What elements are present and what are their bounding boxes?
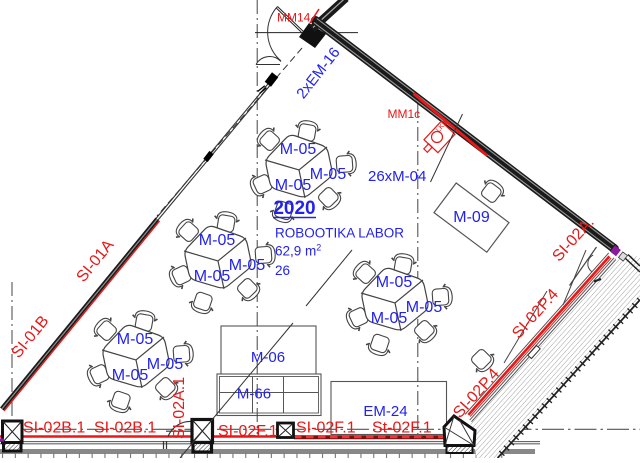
svg-text:SI-02B.1: SI-02B.1 xyxy=(23,420,85,437)
svg-text:26: 26 xyxy=(275,263,290,278)
svg-text:EM-24: EM-24 xyxy=(363,403,407,420)
svg-text:26xM-04: 26xM-04 xyxy=(368,168,426,185)
svg-text:SI-02F.1: SI-02F.1 xyxy=(218,423,278,440)
svg-text:M-09: M-09 xyxy=(453,209,490,226)
svg-text:M-06: M-06 xyxy=(251,349,285,366)
svg-text:M-66: M-66 xyxy=(237,386,271,403)
svg-text:SI-02A.1: SI-02A.1 xyxy=(171,377,188,439)
svg-text:ROBOOTIKA LABOR: ROBOOTIKA LABOR xyxy=(275,226,404,241)
svg-text:62,9 m2: 62,9 m2 xyxy=(275,243,321,259)
svg-text:MM14: MM14 xyxy=(277,11,311,25)
svg-text:SI-02F.1: SI-02F.1 xyxy=(296,420,356,437)
svg-text:MM1c: MM1c xyxy=(388,107,421,121)
svg-text:2020: 2020 xyxy=(273,198,315,219)
svg-text:SI-02B.1: SI-02B.1 xyxy=(94,420,156,437)
svg-text:St-02F.1: St-02F.1 xyxy=(372,420,432,437)
